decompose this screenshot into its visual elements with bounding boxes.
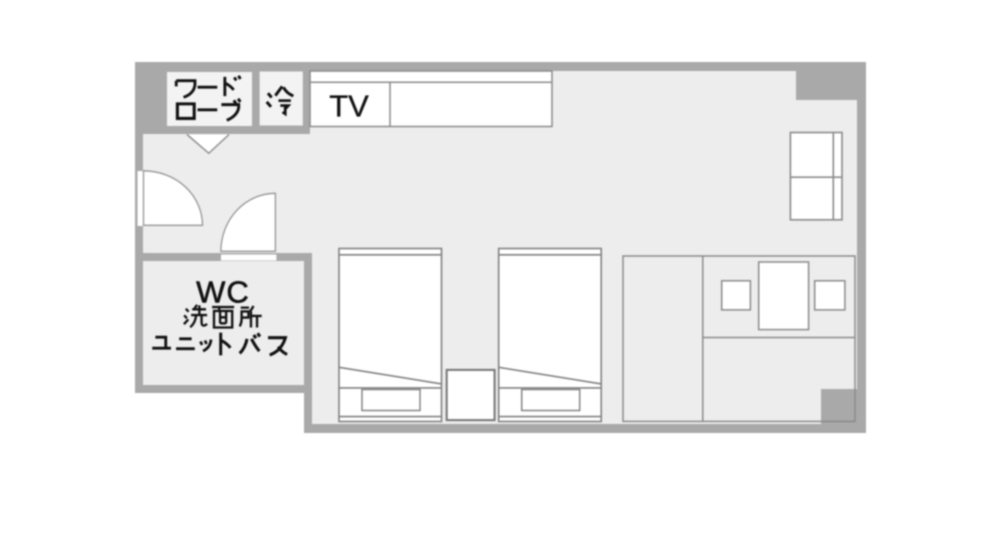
svg-text:TV: TV [329, 89, 369, 124]
svg-text:WC: WC [196, 275, 250, 310]
